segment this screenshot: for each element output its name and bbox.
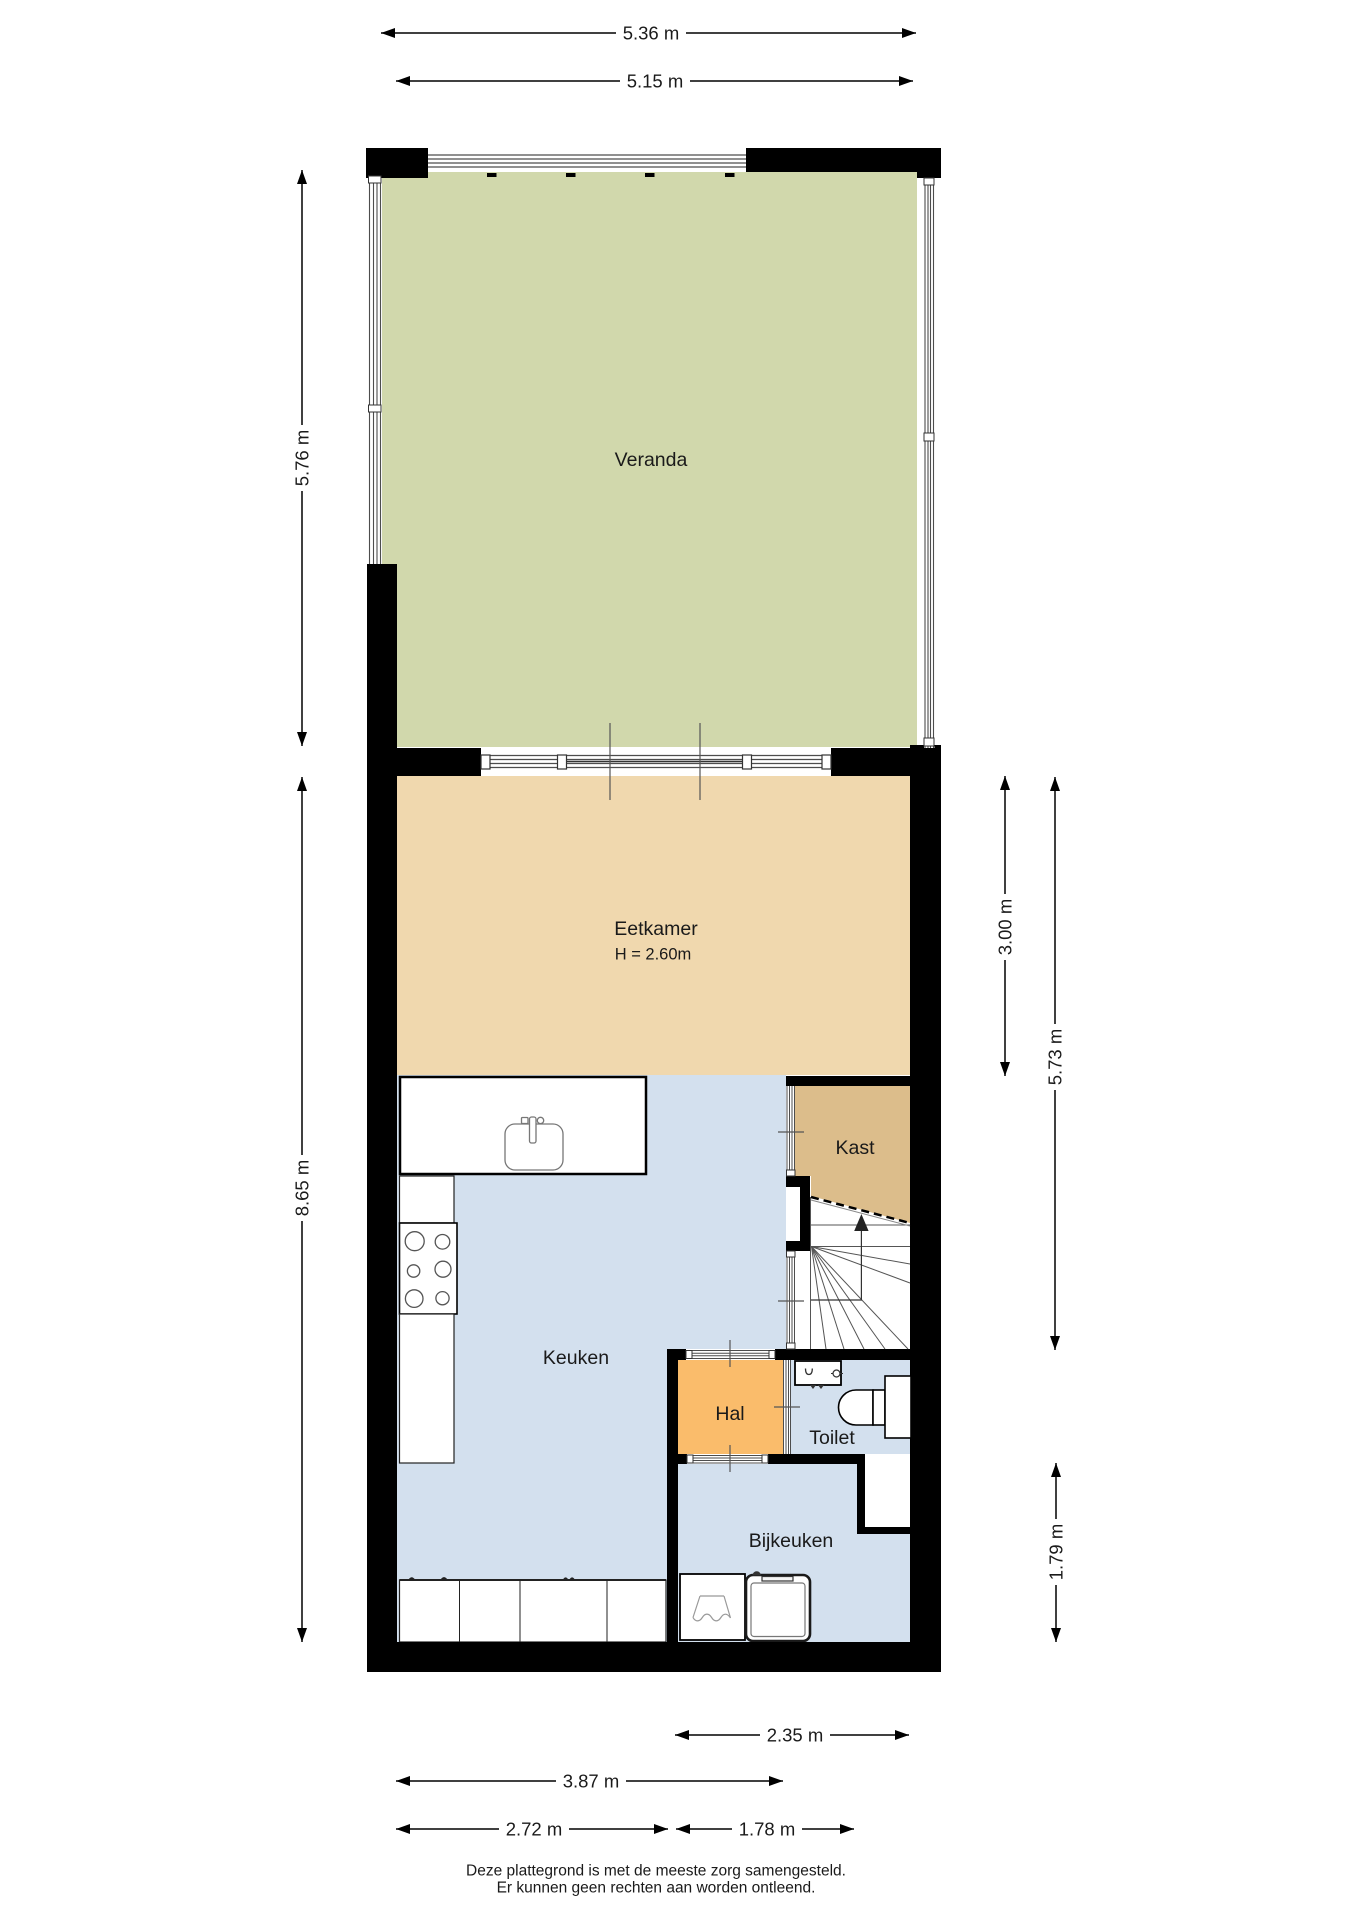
svg-text:5.76 m: 5.76 m	[292, 430, 313, 487]
svg-text:Eetkamer: Eetkamer	[614, 918, 698, 940]
svg-text:5.36 m: 5.36 m	[623, 23, 680, 44]
svg-text:5.73 m: 5.73 m	[1045, 1029, 1066, 1086]
svg-text:3.00 m: 3.00 m	[995, 899, 1016, 956]
svg-text:Er kunnen geen rechten aan wor: Er kunnen geen rechten aan worden ontlee…	[497, 1880, 816, 1897]
svg-text:Veranda: Veranda	[615, 449, 688, 471]
svg-text:Hal: Hal	[715, 1403, 744, 1425]
svg-text:Toilet: Toilet	[809, 1427, 855, 1449]
svg-text:1.78 m: 1.78 m	[739, 1819, 796, 1840]
svg-text:H = 2.60m: H = 2.60m	[615, 946, 692, 964]
svg-text:Kast: Kast	[835, 1137, 875, 1159]
svg-text:2.72 m: 2.72 m	[506, 1819, 563, 1840]
svg-text:Keuken: Keuken	[543, 1347, 609, 1369]
svg-text:8.65 m: 8.65 m	[292, 1160, 313, 1217]
svg-text:1.79 m: 1.79 m	[1046, 1524, 1067, 1581]
svg-text:Bijkeuken: Bijkeuken	[749, 1530, 834, 1552]
svg-text:3.87 m: 3.87 m	[563, 1771, 620, 1792]
svg-text:Deze plattegrond is met de mee: Deze plattegrond is met de meeste zorg s…	[466, 1863, 846, 1880]
svg-text:5.15 m: 5.15 m	[627, 71, 684, 92]
svg-text:2.35 m: 2.35 m	[767, 1725, 824, 1746]
